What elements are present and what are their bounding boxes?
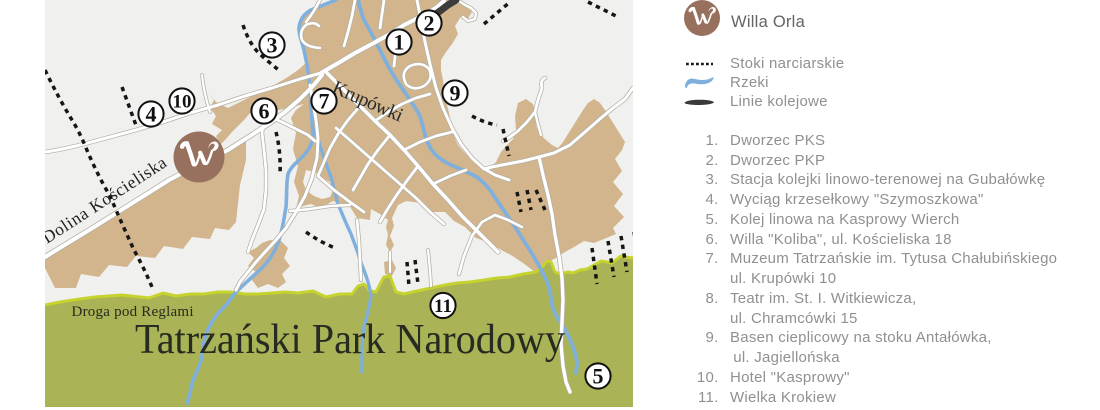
svg-text:1: 1	[394, 30, 405, 55]
svg-text:5: 5	[593, 364, 604, 389]
svg-text:3: 3	[267, 33, 278, 58]
svg-text:9: 9	[450, 81, 461, 106]
svg-text:4: 4	[146, 102, 157, 127]
svg-text:11: 11	[434, 296, 452, 317]
svg-text:7: 7	[319, 89, 330, 114]
svg-text:2: 2	[424, 11, 435, 36]
svg-text:6: 6	[259, 99, 270, 124]
svg-text:Tatrzański Park Narodowy: Tatrzański Park Narodowy	[135, 317, 565, 363]
svg-text:10: 10	[173, 92, 192, 113]
